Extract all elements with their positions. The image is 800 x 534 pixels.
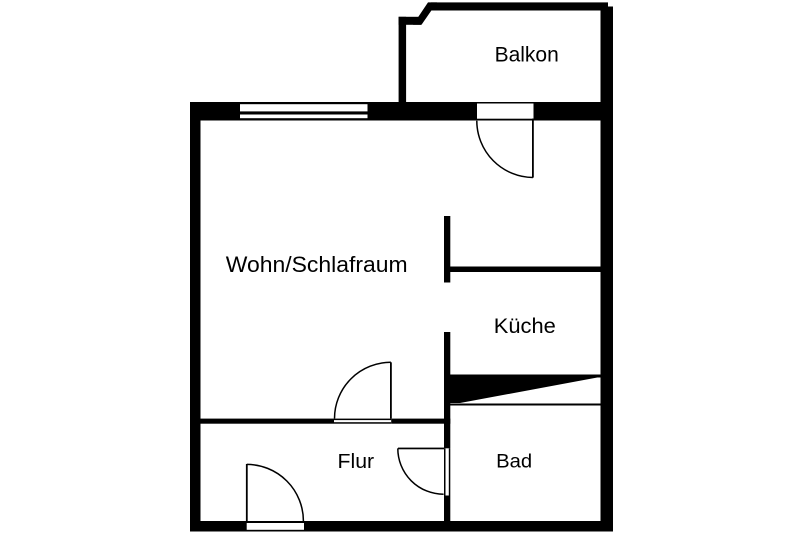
svg-text:Flur: Flur [338,450,375,473]
svg-text:Balkon: Balkon [495,42,559,66]
svg-text:Wohn/Schlafraum: Wohn/Schlafraum [226,252,408,277]
svg-text:Küche: Küche [494,315,556,338]
svg-text:Bad: Bad [496,452,532,473]
